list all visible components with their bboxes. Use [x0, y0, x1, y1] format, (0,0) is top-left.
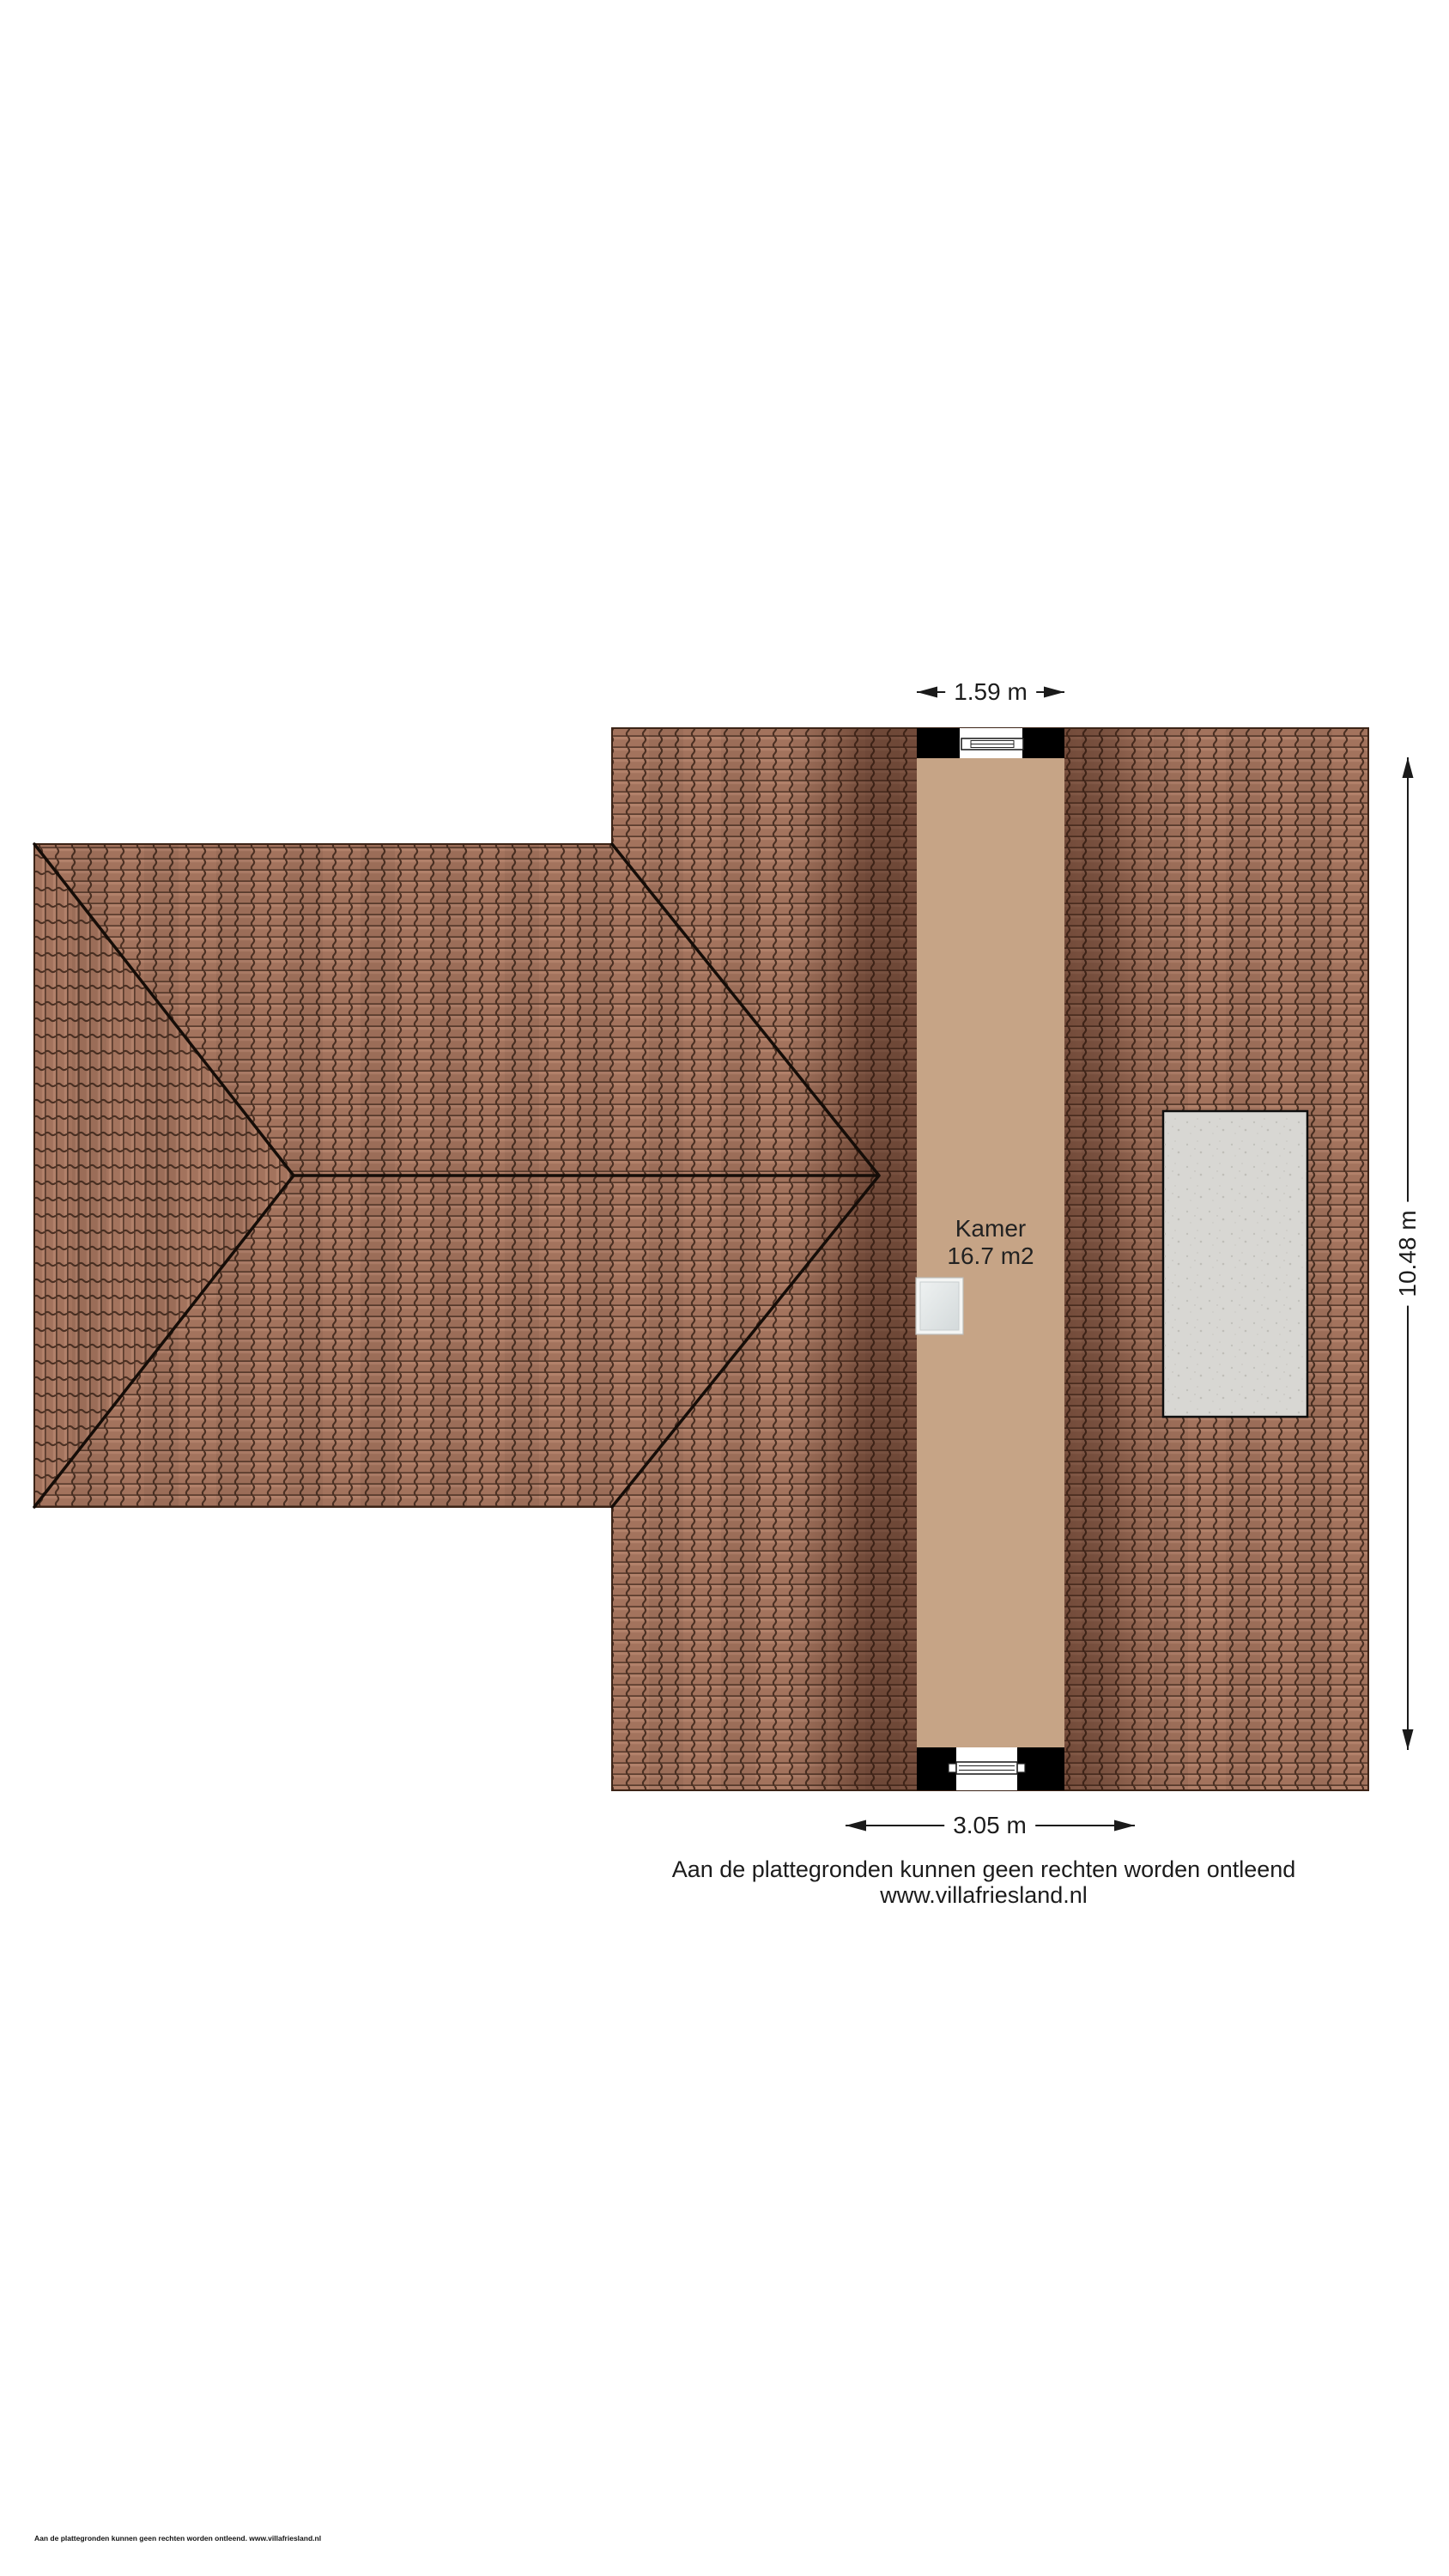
disclaimer-text: Aan de plattegronden kunnen geen rechten…: [672, 1856, 1296, 1882]
concrete-panel: [1163, 1111, 1307, 1417]
dimension-label-right: 10.48 m: [1394, 1201, 1422, 1305]
top-wall-left: [917, 728, 960, 758]
top-window-icon: [961, 738, 1023, 750]
roof-plan-drawing: [0, 0, 1449, 2576]
website-text: www.villafriesland.nl: [880, 1882, 1088, 1908]
room-label: Kamer 16.7 m2: [947, 1215, 1034, 1270]
dormer-shadow-left: [803, 728, 917, 1790]
dormer-shadow-right: [1064, 728, 1172, 1790]
dimension-label-top: 1.59 m: [945, 678, 1036, 706]
bottom-window-icon: [949, 1762, 1025, 1774]
dimension-label-bottom: 3.05 m: [944, 1812, 1035, 1839]
room-area-value: 16.7 m2: [947, 1242, 1034, 1270]
skylight-window: [916, 1278, 963, 1334]
room-name: Kamer: [947, 1215, 1034, 1242]
top-wall-right: [1022, 728, 1064, 758]
fine-print-text: Aan de plattegronden kunnen geen rechten…: [34, 2534, 321, 2543]
floorplan-page: 1.59 m 3.05 m 10.48 m Kamer 16.7 m2 Aan …: [0, 0, 1449, 2576]
